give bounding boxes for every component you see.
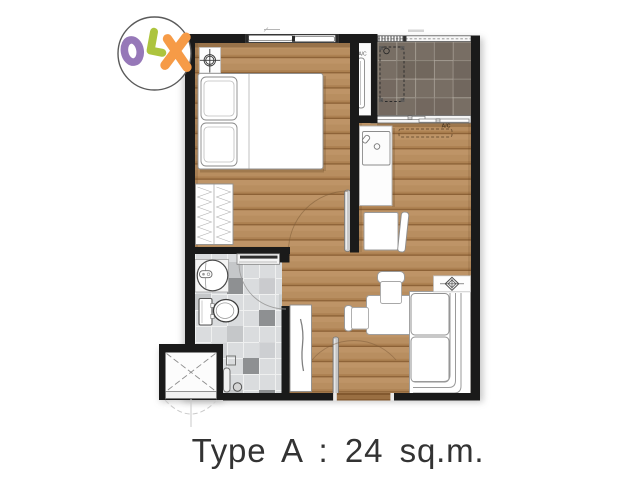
svg-text:A/C: A/C	[358, 52, 367, 58]
svg-text:Type A : 24 sq.m.: Type A : 24 sq.m.	[192, 432, 485, 469]
svg-text:A/C: A/C	[442, 123, 451, 129]
